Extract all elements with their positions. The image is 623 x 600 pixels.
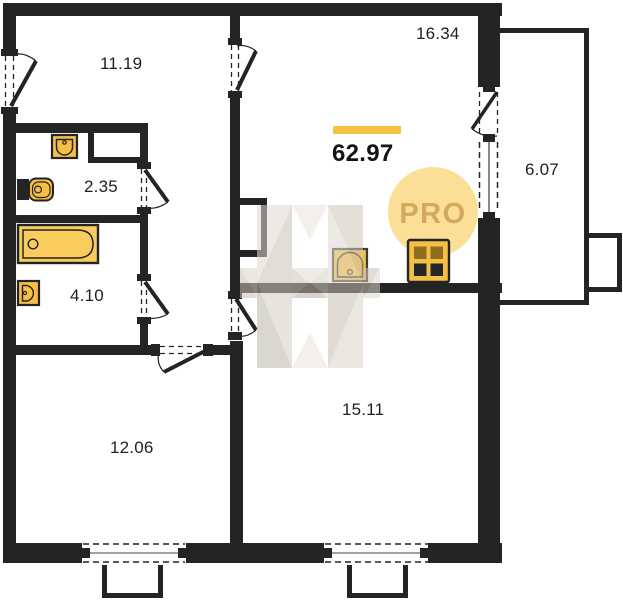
wall-right-upper xyxy=(478,3,500,87)
room-label-hallway: 11.19 xyxy=(100,54,142,74)
bathroom-door xyxy=(142,281,169,319)
total-area-value: 62.97 xyxy=(332,140,394,168)
total-area-accent-bar xyxy=(333,126,401,134)
wall-hall-kitchen-2 xyxy=(230,91,240,292)
window-ledges xyxy=(102,565,408,598)
room-label-balcony: 6.07 xyxy=(525,160,559,180)
wall-bottom-2 xyxy=(186,543,324,563)
stove-icon xyxy=(408,240,449,282)
wc-sink-icon xyxy=(52,135,77,158)
pro-badge-label: PRO xyxy=(399,198,466,230)
wall-right-lower xyxy=(478,218,500,563)
room-label-wc: 2.35 xyxy=(84,177,118,197)
window-balcony xyxy=(480,142,498,212)
living-room-door xyxy=(232,299,257,336)
wall-left-upper xyxy=(3,3,16,49)
wall-wc-bath-divider xyxy=(16,215,140,223)
floorplan-canvas: PRO xyxy=(0,0,623,600)
bathtub-icon xyxy=(18,225,98,263)
balcony-ledge-right xyxy=(617,233,622,292)
balcony-ledge-bottom xyxy=(589,287,622,292)
wall-top xyxy=(3,3,502,16)
room-label-bathroom: 4.10 xyxy=(70,286,104,306)
wall-corridor-2 xyxy=(140,214,148,275)
kitchen-door xyxy=(232,45,257,91)
watermark-h-logo xyxy=(240,205,380,368)
toilet-icon xyxy=(17,179,53,201)
room-label-bedroom: 12.06 xyxy=(110,438,154,458)
wc-door xyxy=(142,169,169,208)
bedroom-door xyxy=(158,347,205,373)
room-label-living-room: 15.11 xyxy=(342,400,384,420)
wall-bath-bottom xyxy=(16,345,151,355)
balcony-outline xyxy=(500,28,622,305)
wall-wc-top xyxy=(16,123,148,133)
wall-rooms-divider xyxy=(230,341,243,563)
window-bedroom xyxy=(82,544,186,562)
bath-sink-icon xyxy=(18,281,39,305)
entrance-door xyxy=(6,54,37,107)
balcony-door xyxy=(472,92,498,136)
window-living-room xyxy=(324,544,428,562)
wall-bottom-1 xyxy=(3,543,82,563)
wall-left-lower xyxy=(3,114,16,563)
room-label-kitchen-living: 16.34 xyxy=(416,24,460,44)
